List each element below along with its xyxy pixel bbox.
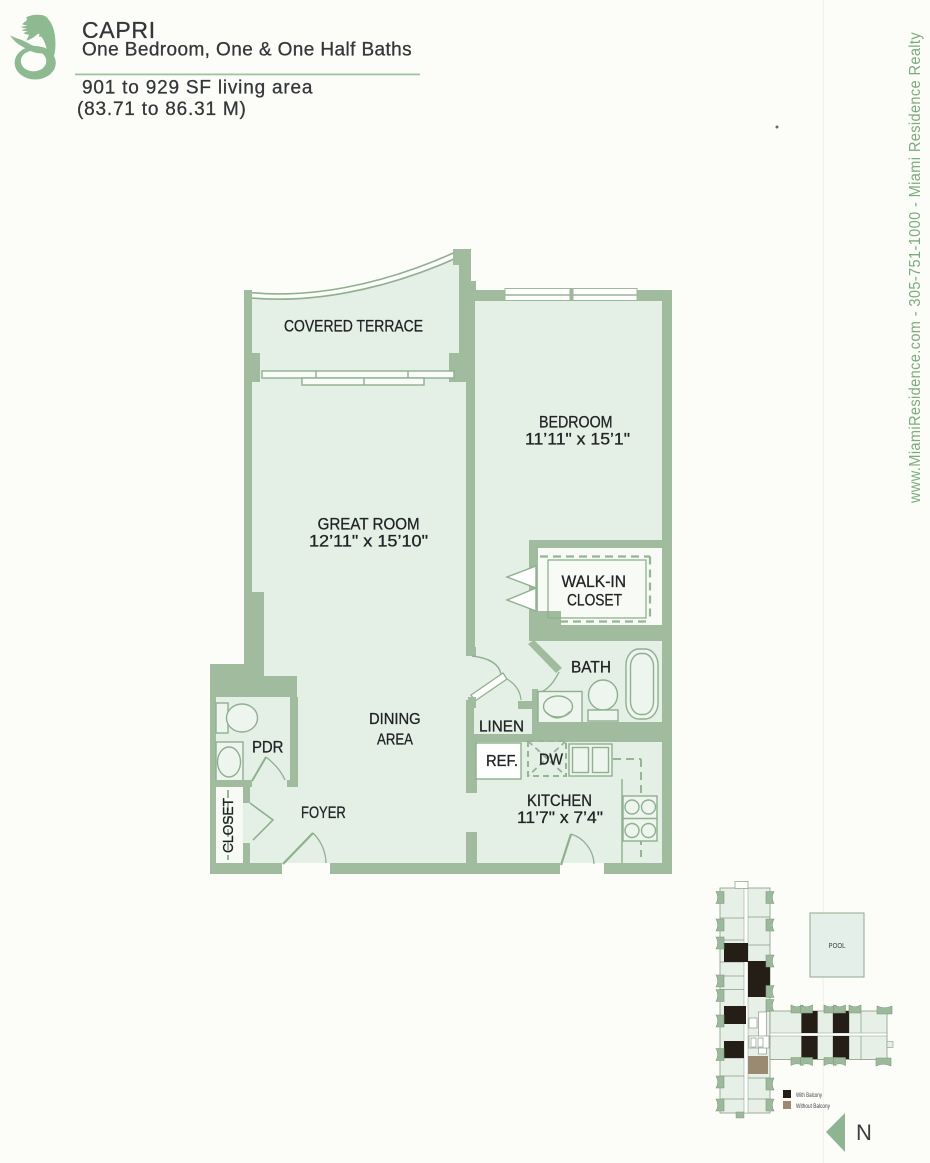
- svg-text:LINEN: LINEN: [479, 719, 524, 736]
- svg-text:DW: DW: [539, 752, 563, 769]
- svg-text:11’11" x 15’1": 11’11" x 15’1": [525, 431, 630, 449]
- svg-text:BEDROOM: BEDROOM: [539, 414, 613, 432]
- svg-text:PDR: PDR: [252, 739, 284, 757]
- svg-text:DINING: DINING: [369, 711, 421, 728]
- svg-text:www.MiamiResidence.com - 305: www.MiamiResidence.com - 305-751-1000 - …: [907, 32, 924, 504]
- svg-text:BATH: BATH: [571, 659, 611, 677]
- svg-text:Without Balcony: Without Balcony: [796, 1103, 830, 1110]
- svg-text:One Bedroom, One & One Half Ba: One Bedroom, One & One Half Baths: [82, 40, 412, 61]
- svg-text:COVERED TERRACE: COVERED TERRACE: [284, 318, 423, 336]
- svg-text:901 to 929 SF living area: 901 to 929 SF living area: [82, 78, 313, 99]
- svg-text:AREA: AREA: [377, 732, 414, 749]
- svg-text:12’11" x 15’10": 12’11" x 15’10": [309, 533, 428, 551]
- svg-text:11’7" x 7’4": 11’7" x 7’4": [517, 809, 603, 827]
- svg-text:GREAT ROOM: GREAT ROOM: [318, 516, 420, 534]
- svg-text:CLOSET: CLOSET: [567, 592, 622, 610]
- svg-text:CLOSET: CLOSET: [221, 798, 237, 853]
- svg-text:POOL: POOL: [829, 943, 846, 950]
- svg-text:With Balcony: With Balcony: [796, 1092, 822, 1099]
- svg-text:FOYER: FOYER: [301, 804, 346, 822]
- svg-text:WALK-IN: WALK-IN: [562, 573, 627, 591]
- svg-text:N: N: [856, 1120, 872, 1145]
- svg-text:(83.71 to 86.31 M): (83.71 to 86.31 M): [77, 99, 247, 120]
- svg-text:REF.: REF.: [486, 753, 518, 770]
- svg-text:KITCHEN: KITCHEN: [527, 792, 592, 810]
